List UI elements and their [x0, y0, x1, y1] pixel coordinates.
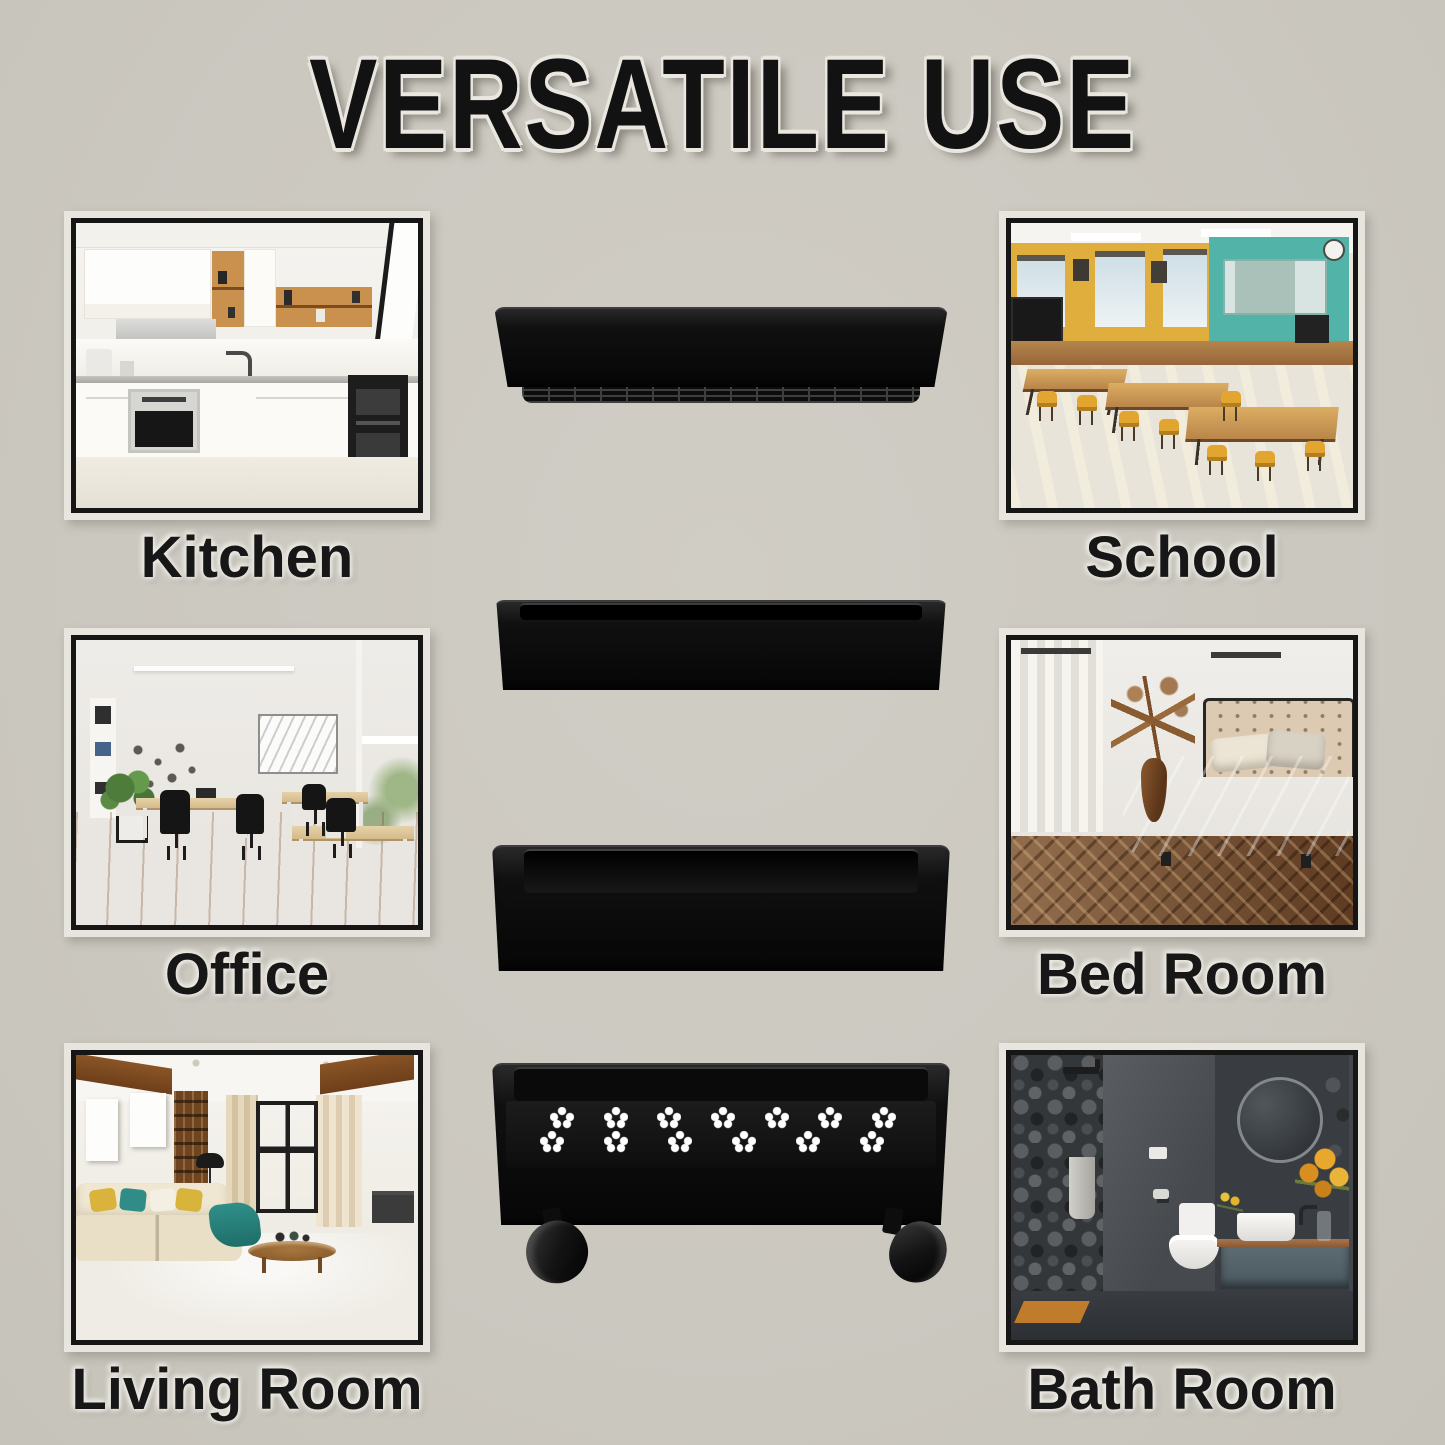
kitchen-wood-shelf — [212, 251, 244, 327]
bedroom-curtain-rod — [1021, 648, 1091, 654]
flower-perforation-row — [550, 1107, 896, 1129]
living-room-wall-art — [86, 1093, 166, 1171]
bathroom-paper-holder — [1153, 1189, 1169, 1199]
school-chair — [1037, 391, 1057, 407]
living-room-label: Living Room — [7, 1356, 487, 1423]
bathroom-shower-head — [1063, 1067, 1099, 1074]
kitchen-floor — [76, 457, 418, 508]
bathroom-photo — [1006, 1050, 1358, 1345]
flower-perforation — [550, 1107, 574, 1129]
flower-perforation — [860, 1131, 884, 1153]
office-laptop — [196, 788, 216, 798]
kitchen-appliance — [86, 349, 112, 377]
office-pendant-light — [134, 666, 294, 671]
kitchen-cabinet — [244, 249, 276, 327]
bathroom-small-flowers — [1217, 1191, 1243, 1225]
chrome-pole-back-right — [894, 363, 905, 1163]
school-whiteboard — [1223, 259, 1327, 315]
bedroom-photo-frame — [999, 628, 1365, 937]
flower-perforation — [657, 1107, 681, 1129]
living-room-pillow — [89, 1187, 118, 1212]
bathroom-vessel-sink — [1237, 1213, 1295, 1241]
office-chair — [160, 790, 190, 834]
school-chair — [1305, 441, 1325, 457]
school-chair — [1255, 451, 1275, 467]
bedroom-curtains — [1011, 640, 1103, 832]
flower-perforation — [872, 1107, 896, 1129]
school-table — [1185, 407, 1339, 442]
flower-perforation — [765, 1107, 789, 1129]
kitchen-faucet — [226, 351, 252, 379]
kitchen-oven — [128, 389, 200, 453]
flower-perforation — [732, 1131, 756, 1153]
bathroom-mat — [1014, 1301, 1090, 1323]
school-chair — [1077, 395, 1097, 411]
living-room-pillow — [175, 1187, 203, 1212]
school-chair — [1159, 419, 1179, 435]
school-photo — [1006, 218, 1358, 513]
basket-rim — [520, 603, 922, 620]
office-chair — [326, 798, 356, 832]
school-window — [1095, 251, 1145, 327]
cart-basket-tier-1 — [494, 307, 948, 387]
kitchen-photo — [71, 218, 423, 513]
office-label: Office — [7, 941, 487, 1008]
school-chair — [1119, 411, 1139, 427]
living-room-curtain — [316, 1095, 362, 1227]
bathroom-flower-vase — [1317, 1211, 1331, 1241]
school-photo-frame — [999, 211, 1365, 520]
school-label: School — [942, 524, 1422, 591]
bedroom-photo — [1006, 635, 1358, 930]
bedroom-label: Bed Room — [942, 941, 1422, 1008]
school-clock — [1323, 239, 1345, 261]
flower-perforation — [711, 1107, 735, 1129]
flower-perforation — [540, 1131, 564, 1153]
school-wall-picture — [1073, 259, 1089, 281]
living-room-photo-frame — [64, 1043, 430, 1352]
product-infographic: VERSATILE USE Kitchen — [0, 0, 1445, 1445]
cart-basket-tier-3 — [492, 845, 950, 971]
cart-basket-tier-4 — [492, 1063, 950, 1225]
chrome-pole-back-left — [547, 363, 558, 1163]
office-wall-board — [258, 714, 338, 774]
flower-perforation — [604, 1131, 628, 1153]
basket-interior — [514, 1067, 928, 1101]
flower-perforation-row — [540, 1131, 884, 1153]
school-table — [1105, 383, 1229, 410]
school-coffee-machine — [1295, 315, 1329, 343]
living-room-media-unit — [372, 1191, 414, 1223]
storage-cart-product — [492, 303, 950, 1298]
cart-basket-tier-2 — [494, 600, 948, 690]
kitchen-wood-shelf — [276, 287, 372, 327]
kitchen-range-hood — [116, 319, 216, 339]
flower-perforation — [796, 1131, 820, 1153]
school-counter — [1011, 341, 1353, 365]
flower-perforation — [604, 1107, 628, 1129]
living-room-coffee-table — [248, 1241, 336, 1261]
kitchen-photo-frame — [64, 211, 430, 520]
living-room-window — [256, 1101, 318, 1213]
page-title: VERSATILE USE — [145, 38, 1301, 172]
bathroom-photo-frame — [999, 1043, 1365, 1352]
bedroom-dried-plant — [1111, 676, 1195, 764]
school-chair — [1207, 445, 1227, 461]
bathroom-vanity-cabinet — [1221, 1247, 1349, 1289]
living-room-pillow — [119, 1188, 147, 1213]
wire-shelf — [522, 387, 920, 403]
living-room-pillow — [149, 1188, 177, 1212]
bathroom-towel — [1069, 1157, 1095, 1219]
kitchen-ceiling — [76, 223, 418, 248]
bathroom-toilet-tank — [1179, 1203, 1215, 1237]
living-room-photo — [71, 1050, 423, 1345]
office-chair — [236, 794, 264, 834]
bathroom-flush-plate — [1149, 1147, 1167, 1159]
living-room-lamp — [196, 1153, 224, 1168]
kitchen-upper-cabinet — [84, 249, 211, 319]
school-window — [1163, 249, 1207, 327]
flower-perforation — [818, 1107, 842, 1129]
living-room-table-items — [272, 1231, 316, 1243]
living-room-shelf — [174, 1091, 208, 1187]
office-chair — [302, 784, 326, 810]
bathroom-label: Bath Room — [942, 1356, 1422, 1423]
flower-perforations — [506, 1101, 936, 1167]
school-chair — [1221, 391, 1241, 407]
basket-interior — [524, 849, 918, 893]
office-photo-frame — [64, 628, 430, 937]
office-photo — [71, 635, 423, 930]
kitchen-label: Kitchen — [7, 524, 487, 591]
flower-perforation — [668, 1131, 692, 1153]
